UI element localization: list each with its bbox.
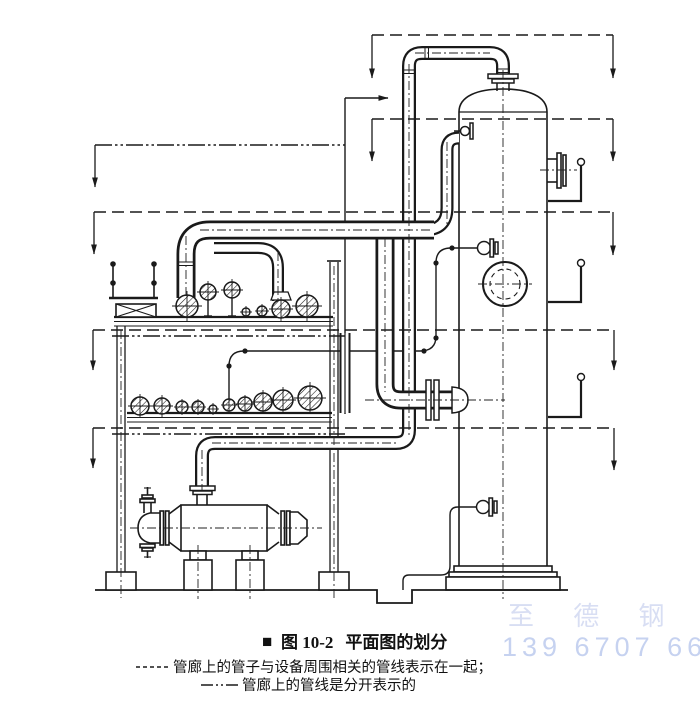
exchanger-nozzle-flange (190, 486, 215, 491)
vessel-side-nozzle-pipe (385, 232, 453, 400)
structures (95, 89, 568, 603)
anchor-box (116, 304, 156, 317)
column-vessel (446, 89, 566, 590)
overhead-pipe (202, 53, 503, 493)
figure-page: 至 德 钢 业 139 6707 6667 (0, 0, 700, 704)
gauge-circle (578, 260, 585, 267)
gauge-circle (578, 374, 585, 381)
caption: ■ 图 10-2平面图的划分 管廊上的管子与设备周围相关的管线表示在一起； 管廊… (136, 632, 492, 694)
watermark-phone: 139 6707 6667 (502, 632, 700, 662)
boundary-arrows (93, 35, 614, 470)
svg-text:图 10-2平面图的划分: 图 10-2平面图的划分 (281, 632, 447, 652)
inner-rack-run (214, 248, 278, 301)
vessel-upper-nozzle-pipe (424, 138, 459, 230)
division-boundaries (93, 35, 614, 470)
outer-rack-run (186, 230, 434, 298)
heat-exchanger (138, 487, 307, 590)
legend-item-1: 管廊上的管子与设备周围相关的管线表示在一起； (173, 659, 492, 676)
level-gauges (548, 159, 585, 418)
watermark: 至 德 钢 业 139 6707 6667 (502, 601, 700, 662)
watermark-company: 至 德 钢 业 (508, 601, 700, 631)
side-nozzle-flange (557, 153, 561, 188)
caption-bullet: ■ (262, 632, 272, 651)
gauge-circle (578, 159, 585, 166)
rack-pipe-sections (128, 279, 326, 418)
legend: 管廊上的管子与设备周围相关的管线表示在一起； 管廊上的管线是分开表示的 (136, 659, 492, 694)
figure-label: 图 10-2 (281, 633, 333, 652)
instrument-posts (109, 261, 158, 298)
projecting-nozzle-lower (477, 498, 498, 516)
legend-item-2: 管廊上的管线是分开表示的 (242, 677, 416, 694)
piping-diagram: 至 德 钢 业 139 6707 6667 (0, 0, 700, 704)
ground-line (95, 590, 568, 603)
figure-title: 平面图的划分 (345, 632, 447, 652)
projecting-nozzle-mid (478, 239, 499, 257)
